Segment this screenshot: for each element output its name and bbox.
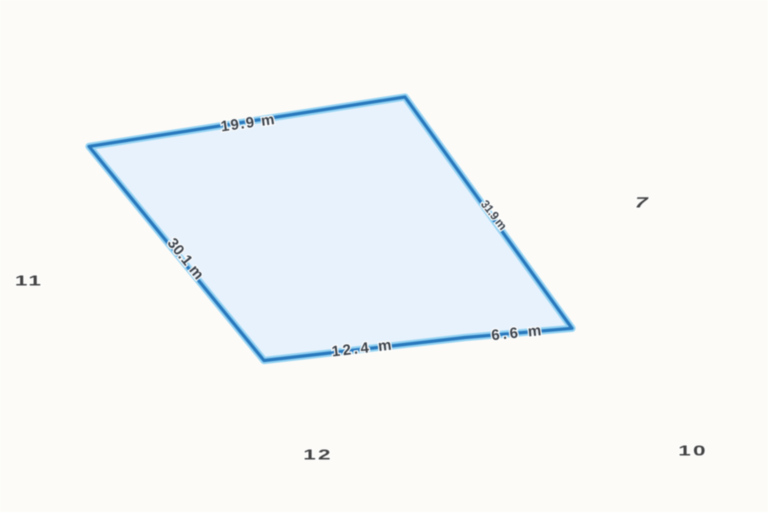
svg-text:12: 12 [303, 447, 333, 463]
svg-text:11: 11 [15, 273, 43, 289]
svg-text:10: 10 [678, 443, 708, 459]
